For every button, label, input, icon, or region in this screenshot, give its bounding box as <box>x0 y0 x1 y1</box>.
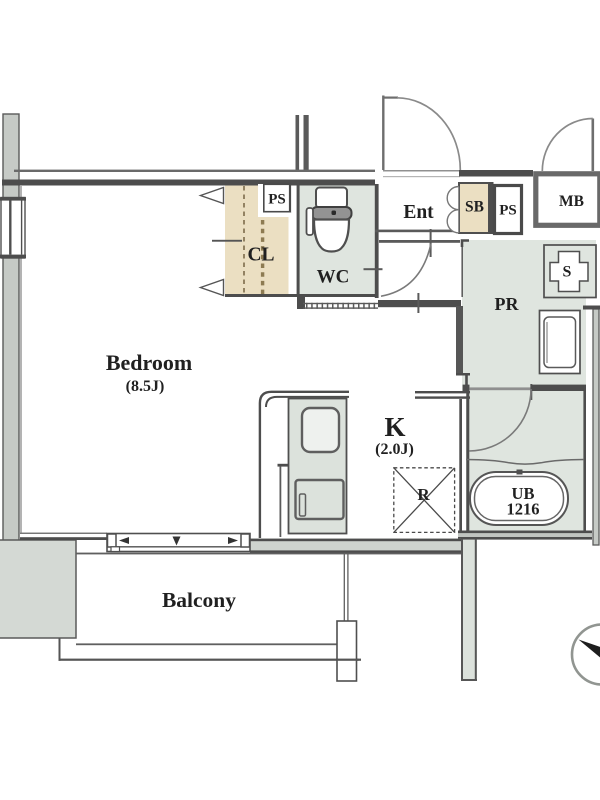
svg-text:K: K <box>384 412 405 442</box>
svg-text:PS: PS <box>268 192 286 208</box>
svg-text:SB: SB <box>465 199 484 216</box>
svg-text:Bedroom: Bedroom <box>106 350 192 375</box>
svg-text:PR: PR <box>495 294 520 314</box>
svg-text:Balcony: Balcony <box>162 588 236 612</box>
svg-text:S: S <box>563 264 572 281</box>
svg-text:Ent: Ent <box>403 202 434 223</box>
svg-text:WC: WC <box>317 267 350 288</box>
svg-text:MB: MB <box>559 193 584 210</box>
svg-text:(2.0J): (2.0J) <box>375 441 414 458</box>
svg-text:PS: PS <box>499 203 517 219</box>
svg-text:(8.5J): (8.5J) <box>126 378 165 395</box>
svg-text:R: R <box>417 485 430 504</box>
svg-text:CL: CL <box>247 245 274 266</box>
svg-text:1216: 1216 <box>507 500 540 519</box>
